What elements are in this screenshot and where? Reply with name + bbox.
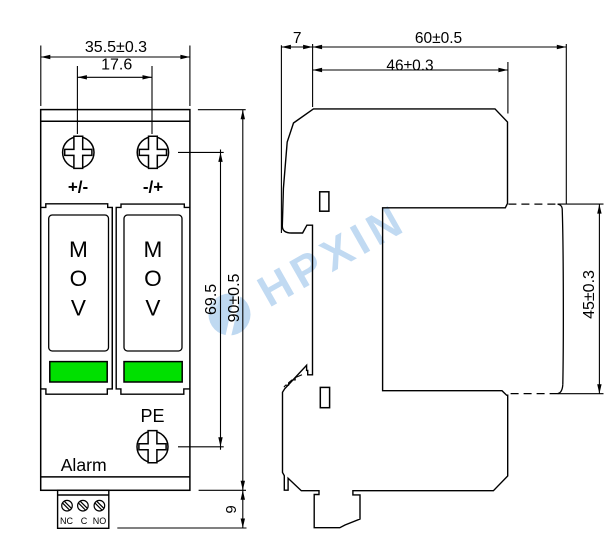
svg-text:9: 9: [223, 505, 240, 513]
svg-text:V: V: [145, 295, 160, 320]
svg-text:M: M: [69, 237, 88, 262]
svg-text:V: V: [71, 295, 86, 320]
svg-text:45±0.3: 45±0.3: [581, 270, 598, 319]
svg-text:O: O: [144, 266, 162, 291]
svg-text:69.5: 69.5: [203, 284, 220, 315]
svg-text:O: O: [70, 266, 88, 291]
svg-text:90±0.5: 90±0.5: [226, 273, 243, 322]
svg-text:M: M: [143, 237, 162, 262]
svg-text:C: C: [81, 516, 88, 526]
svg-text:7: 7: [293, 30, 302, 47]
svg-text:NC: NC: [60, 516, 73, 526]
svg-text:17.6: 17.6: [101, 56, 132, 73]
svg-text:+/-: +/-: [68, 178, 88, 197]
svg-text:PE: PE: [140, 406, 164, 426]
svg-text:NO: NO: [93, 516, 107, 526]
svg-text:35.5±0.3: 35.5±0.3: [85, 39, 147, 56]
svg-text:Alarm: Alarm: [61, 455, 107, 475]
svg-text:-/+: -/+: [143, 178, 163, 197]
svg-text:46±0.3: 46±0.3: [386, 58, 433, 75]
svg-text:60±0.5: 60±0.5: [415, 30, 462, 47]
